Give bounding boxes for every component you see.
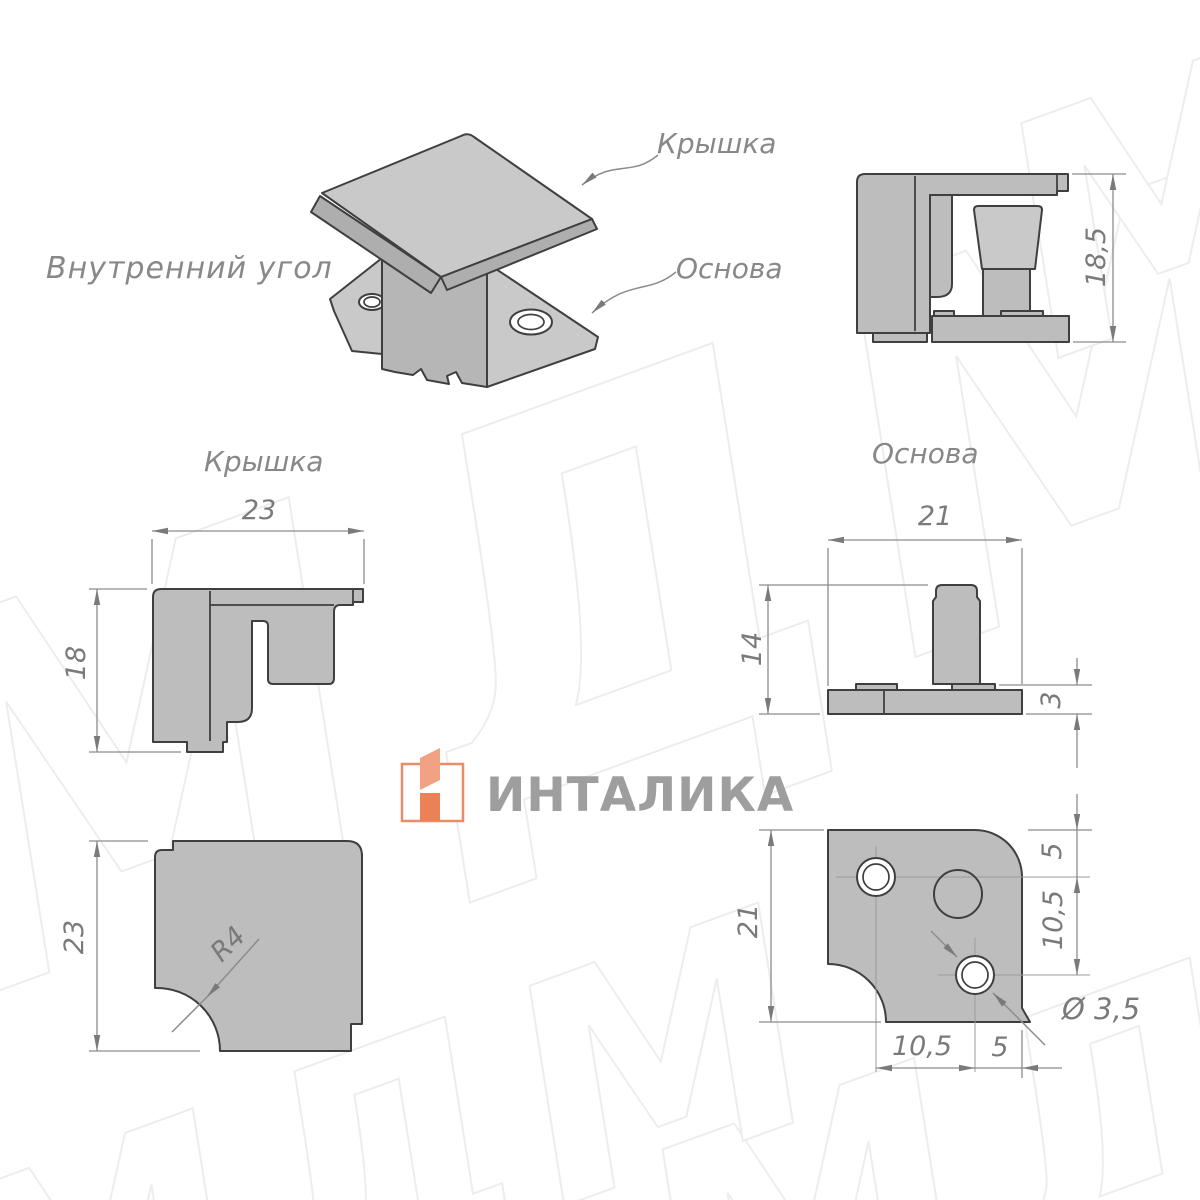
drawing-sheet: МДМ МДМ МДМ МДМ Внутренний угол Крышка О… <box>0 0 1200 1200</box>
logo-wordmark: ИНТАЛИКА <box>486 768 794 823</box>
hole-diameter-dim: Ø 3,5 <box>1062 992 1140 1026</box>
assembled-height-dim: 18,5 <box>1081 212 1111 302</box>
base-plan-height-dim: 21 <box>733 891 763 951</box>
cover-side-view-drawing <box>50 490 410 780</box>
hole-pitch-right-dim: 10,5 <box>1038 880 1068 960</box>
page-title: Внутренний угол <box>46 251 333 286</box>
cover-height-dim: 18 <box>61 633 91 693</box>
hole-offset-top-dim: 5 <box>1037 821 1067 881</box>
base-thickness-dim: 3 <box>1036 670 1066 730</box>
base-plan-view-drawing <box>730 780 1200 1095</box>
base-height-dim: 14 <box>737 619 767 679</box>
hole-pitch-bottom-dim: 10,5 <box>882 1031 962 1061</box>
cover-plan-height-dim: 23 <box>59 907 89 967</box>
hole-offset-bottom-dim: 5 <box>970 1032 1030 1062</box>
cover-width-dim: 23 <box>229 495 289 525</box>
iso-cover-label: Крышка <box>657 127 776 160</box>
base-section-label: Основа <box>872 437 979 470</box>
intalika-logo-icon <box>399 744 467 826</box>
cover-section-label: Крышка <box>204 445 323 478</box>
base-width-dim: 21 <box>905 501 965 531</box>
iso-base-label: Основа <box>676 252 783 285</box>
